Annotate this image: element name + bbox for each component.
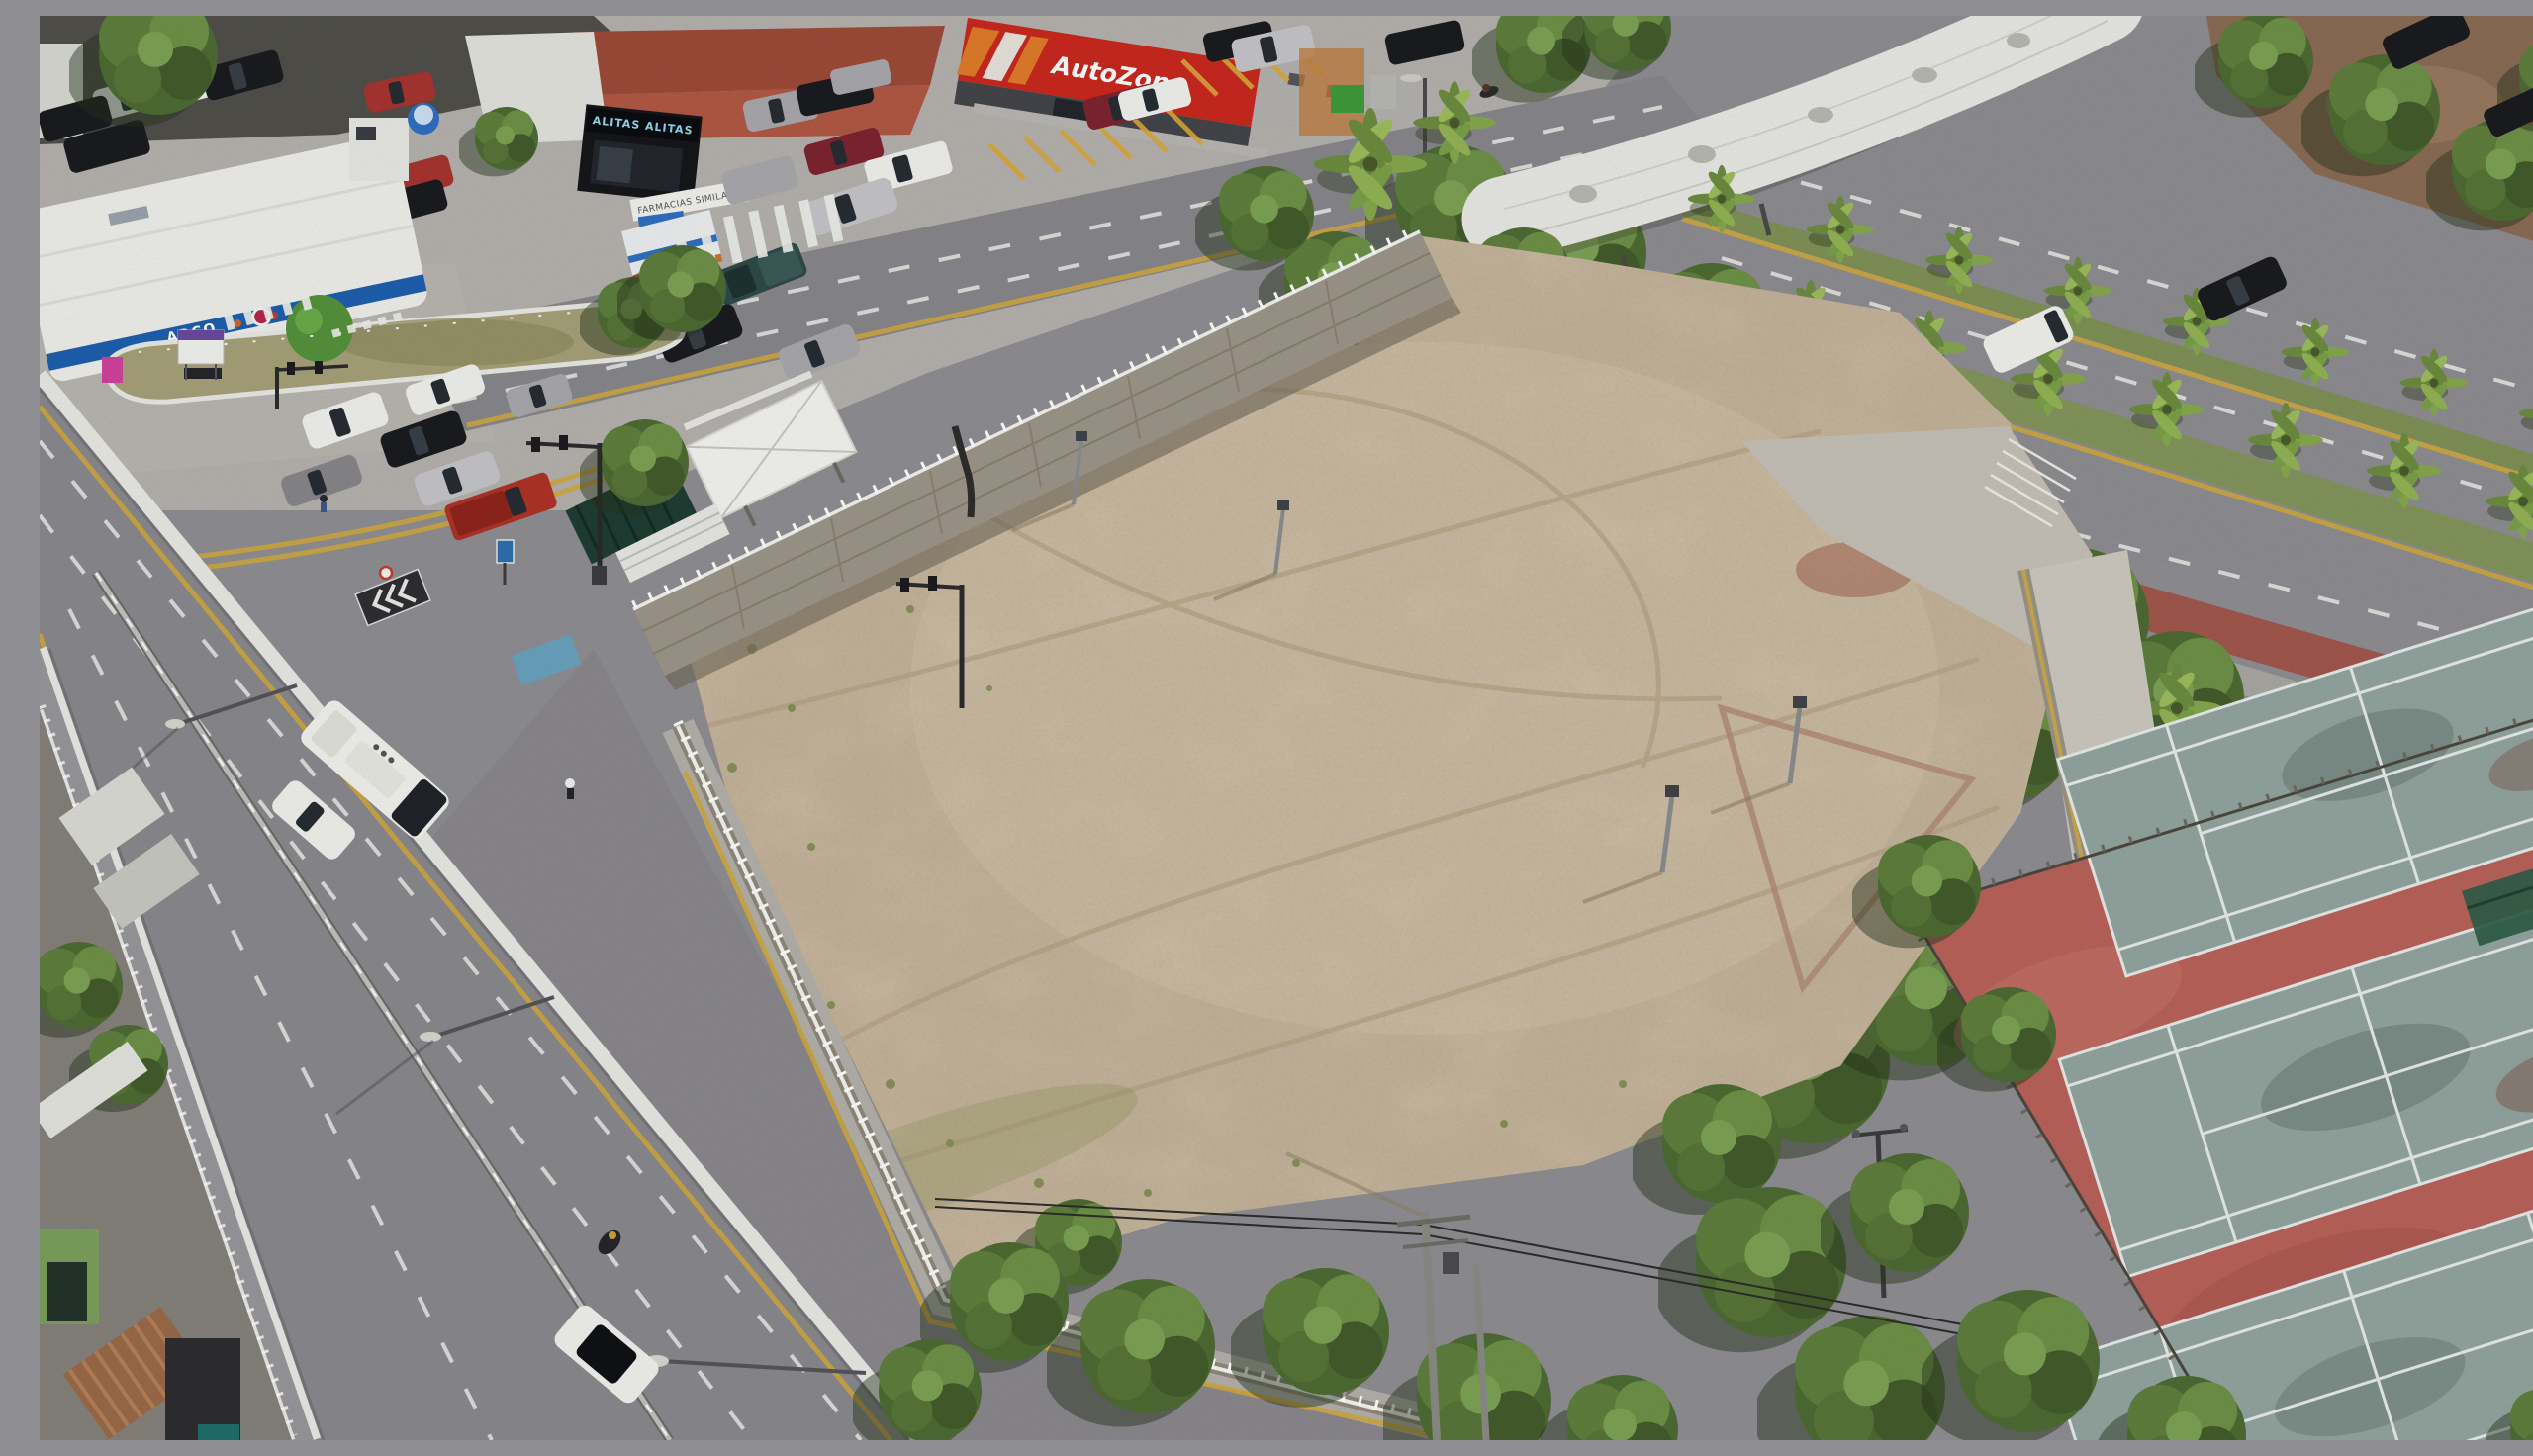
photo-grain (40, 16, 2533, 1440)
aerial-photo: ALITAS ALITAS FARMACIAS SIMILARES 312 AR… (40, 16, 2533, 1440)
